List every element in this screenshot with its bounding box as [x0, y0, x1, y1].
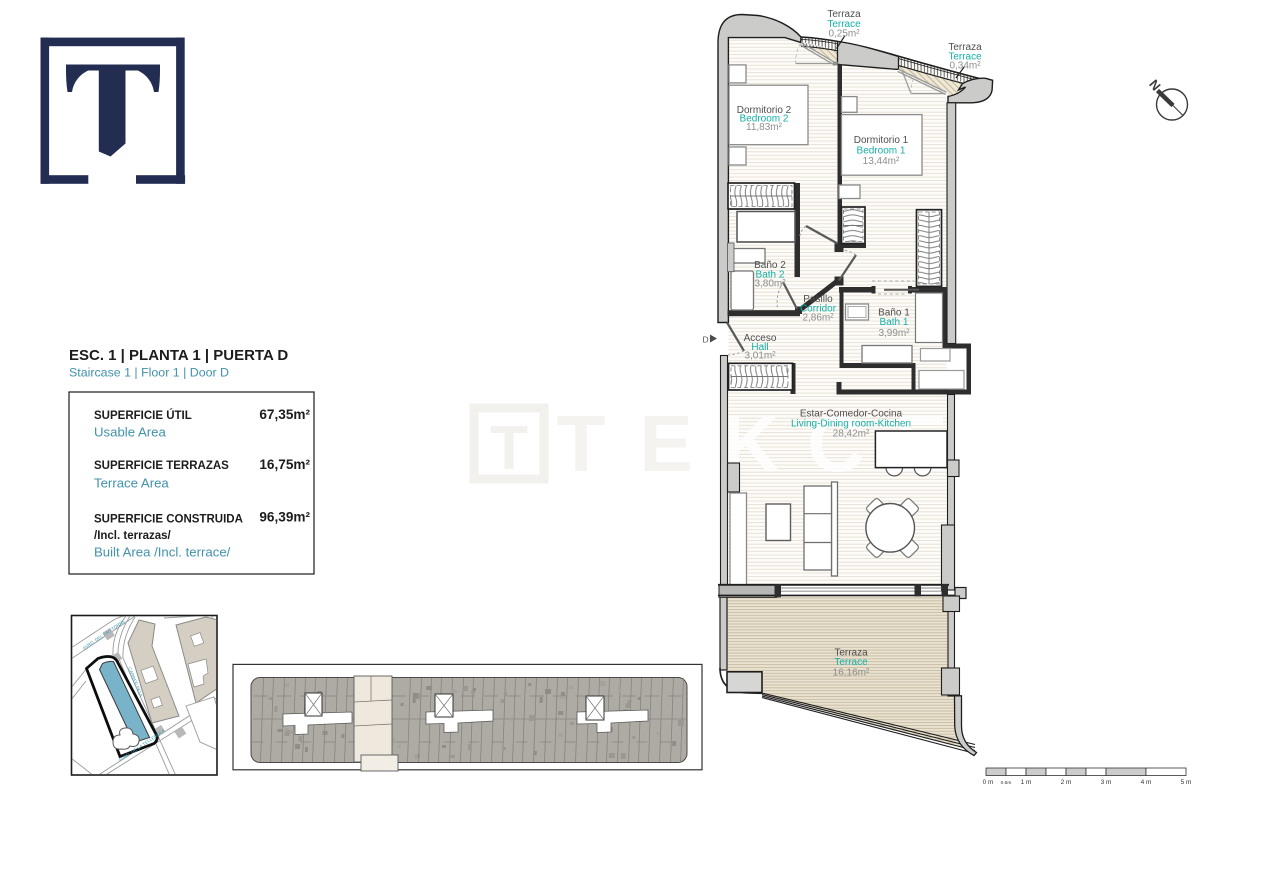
svg-text:4 m: 4 m [1141, 779, 1152, 786]
svg-text:D: D [703, 335, 709, 345]
svg-text:0,34m²: 0,34m² [949, 61, 981, 72]
svg-text:Usable Area: Usable Area [94, 425, 167, 440]
svg-text:T: T [557, 399, 606, 488]
svg-text:13,44m²: 13,44m² [863, 156, 900, 167]
svg-text:SUPERFICIE ÚTIL: SUPERFICIE ÚTIL [94, 409, 192, 422]
svg-text:Terrace: Terrace [834, 657, 868, 668]
svg-text:16,75m²: 16,75m² [259, 457, 310, 472]
svg-text:Bath 1: Bath 1 [880, 317, 909, 328]
svg-text:0 m: 0 m [983, 779, 994, 786]
svg-text:ESC. 1 | PLANTA 1 | PUERTA D: ESC. 1 | PLANTA 1 | PUERTA D [69, 347, 288, 364]
svg-text:3,01m²: 3,01m² [744, 351, 776, 362]
svg-text:2,86m²: 2,86m² [802, 313, 834, 324]
svg-text:Dormitorio 1: Dormitorio 1 [854, 135, 909, 146]
svg-text:1 m: 1 m [1021, 779, 1032, 786]
svg-text:SUPERFICIE TERRAZAS: SUPERFICIE TERRAZAS [94, 460, 229, 472]
svg-text:2 m: 2 m [1061, 779, 1072, 786]
svg-text:0,25m²: 0,25m² [828, 29, 860, 40]
svg-text:T: T [490, 414, 528, 483]
svg-text:3 m: 3 m [1101, 779, 1112, 786]
svg-text:Staircase 1 | Floor 1 | Door D: Staircase 1 | Floor 1 | Door D [69, 366, 229, 380]
svg-text:28,42m²: 28,42m² [833, 429, 870, 440]
svg-text:11,83m²: 11,83m² [746, 122, 783, 133]
svg-text:67,35m²: 67,35m² [259, 407, 310, 422]
svg-text:SUPERFICIE CONSTRUIDA: SUPERFICIE CONSTRUIDA [94, 514, 243, 526]
svg-text:5 m: 5 m [1181, 779, 1192, 786]
svg-text:E: E [639, 399, 692, 488]
svg-text:3,80m²: 3,80m² [754, 279, 786, 290]
svg-text:Terrace Area: Terrace Area [94, 476, 169, 491]
svg-text:Bedroom 1: Bedroom 1 [857, 146, 906, 157]
svg-text:Built Area /Incl. terrace/: Built Area /Incl. terrace/ [94, 545, 231, 560]
svg-text:3,99m²: 3,99m² [878, 328, 910, 339]
svg-text:/Incl. terrazas/: /Incl. terrazas/ [94, 530, 172, 542]
svg-text:96,39m²: 96,39m² [259, 510, 310, 525]
svg-text:16,16m²: 16,16m² [833, 668, 870, 679]
svg-text:0.5m: 0.5m [1001, 780, 1012, 786]
